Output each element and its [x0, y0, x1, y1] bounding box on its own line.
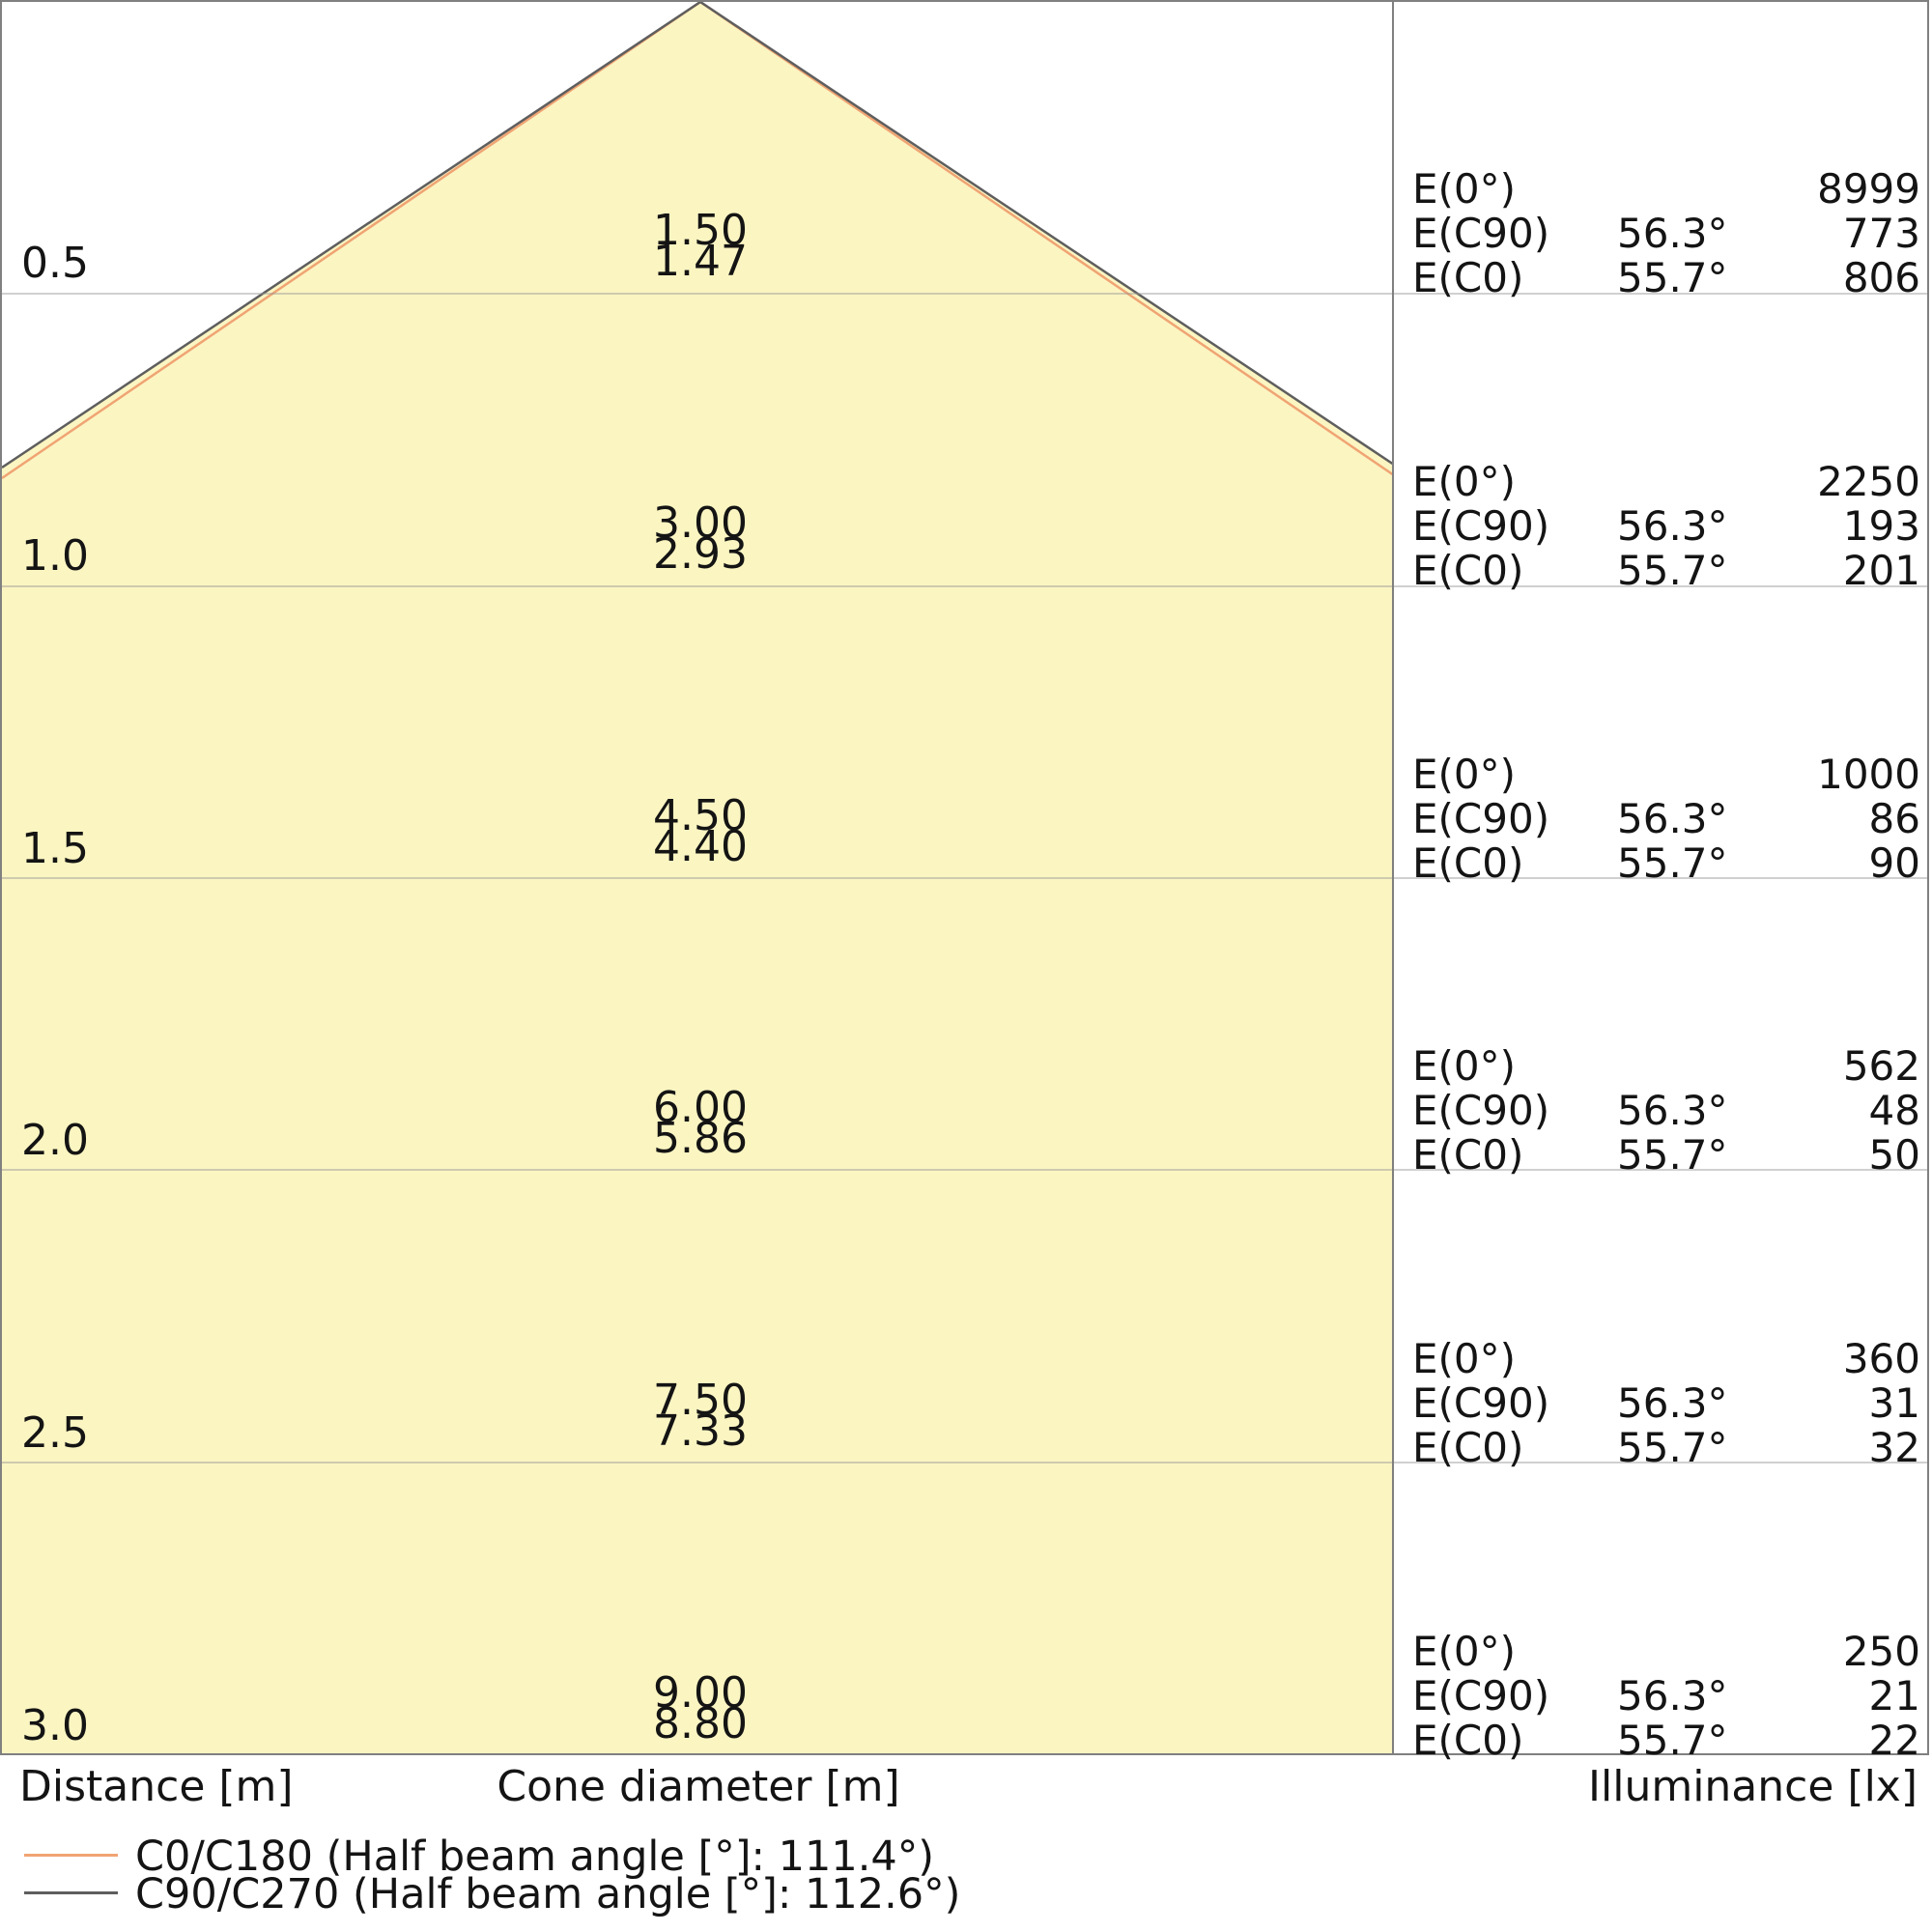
e-value: 193	[1721, 504, 1920, 549]
illuminance-line: E(C0) 55.7° 806	[1412, 256, 1920, 300]
e-value: 773	[1721, 212, 1920, 256]
e-value: 22	[1721, 1719, 1920, 1763]
illuminance-line: E(C90) 56.3° 773	[1412, 212, 1920, 256]
e-label: E(C0)	[1412, 1426, 1617, 1470]
cone-diameter-c0-label: 1.47	[555, 241, 845, 283]
e-angle: 55.7°	[1617, 1719, 1721, 1763]
illuminance-block: E(0°) 1000 E(C90) 56.3° 86 E(C0) 55.7° 9…	[1412, 753, 1920, 886]
e-label: E(0°)	[1412, 753, 1617, 797]
chart-area: 0.5 1.50 1.47 E(0°) 8999 E(C90) 56.3° 77…	[0, 0, 1929, 1755]
cone-diameter-c0-label: 8.80	[555, 1703, 845, 1746]
legend-label-c90: C90/C270 (Half beam angle [°]: 112.6°)	[135, 1873, 960, 1916]
e-label: E(C0)	[1412, 1719, 1617, 1763]
illuminance-line: E(C0) 55.7° 50	[1412, 1133, 1920, 1178]
e-label: E(0°)	[1412, 1337, 1617, 1381]
e-angle	[1617, 460, 1721, 504]
illuminance-line: E(C0) 55.7° 90	[1412, 841, 1920, 886]
e-angle	[1617, 1044, 1721, 1089]
e-label: E(0°)	[1412, 167, 1617, 212]
e-label: E(0°)	[1412, 460, 1617, 504]
illuminance-line: E(C0) 55.7° 22	[1412, 1719, 1920, 1763]
e-label: E(0°)	[1412, 1630, 1617, 1674]
e-angle	[1617, 1337, 1721, 1381]
e-angle	[1617, 1630, 1721, 1674]
e-label: E(0°)	[1412, 1044, 1617, 1089]
distance-tick-label: 3.0	[21, 1705, 89, 1747]
e-label: E(C0)	[1412, 841, 1617, 886]
legend-swatch-c0-line	[24, 1854, 118, 1857]
distance-axis-label: Distance [m]	[19, 1766, 294, 1808]
e-value: 1000	[1721, 753, 1920, 797]
illuminance-block: E(0°) 360 E(C90) 56.3° 31 E(C0) 55.7° 32	[1412, 1337, 1920, 1470]
e-angle: 55.7°	[1617, 256, 1721, 300]
e-label: E(C90)	[1412, 1674, 1617, 1719]
e-angle: 56.3°	[1617, 504, 1721, 549]
cone-diameter-axis-label: Cone diameter [m]	[497, 1766, 899, 1808]
illuminance-line: E(C90) 56.3° 21	[1412, 1674, 1920, 1719]
e-value: 2250	[1721, 460, 1920, 504]
e-value: 50	[1721, 1133, 1920, 1178]
cone-diameter-c0-label: 5.86	[555, 1118, 845, 1160]
distance-tick-label: 2.0	[21, 1120, 89, 1162]
illuminance-line: E(C90) 56.3° 31	[1412, 1381, 1920, 1426]
distance-tick-label: 2.5	[21, 1412, 89, 1455]
e-angle: 55.7°	[1617, 549, 1721, 593]
illuminance-line: E(0°) 2250	[1412, 460, 1920, 504]
e-angle: 55.7°	[1617, 1426, 1721, 1470]
distance-tick-label: 0.5	[21, 242, 89, 285]
illuminance-line: E(0°) 562	[1412, 1044, 1920, 1089]
cone-diagram-page: 0.5 1.50 1.47 E(0°) 8999 E(C90) 56.3° 77…	[0, 0, 1932, 1932]
e-label: E(C90)	[1412, 1381, 1617, 1426]
e-value: 360	[1721, 1337, 1920, 1381]
e-angle: 56.3°	[1617, 1089, 1721, 1133]
distance-tick-label: 1.5	[21, 828, 89, 870]
e-value: 21	[1721, 1674, 1920, 1719]
distance-tick-label: 1.0	[21, 535, 89, 578]
e-angle: 56.3°	[1617, 797, 1721, 841]
cone-diameter-c0-label: 7.33	[555, 1410, 845, 1453]
illuminance-line: E(0°) 8999	[1412, 167, 1920, 212]
illuminance-block: E(0°) 2250 E(C90) 56.3° 193 E(C0) 55.7° …	[1412, 460, 1920, 593]
e-value: 201	[1721, 549, 1920, 593]
cone-diameter-c0-label: 2.93	[555, 533, 845, 576]
e-value: 90	[1721, 841, 1920, 886]
e-value: 250	[1721, 1630, 1920, 1674]
e-label: E(C0)	[1412, 549, 1617, 593]
illuminance-line: E(0°) 360	[1412, 1337, 1920, 1381]
e-angle: 55.7°	[1617, 1133, 1721, 1178]
illuminance-block: E(0°) 250 E(C90) 56.3° 21 E(C0) 55.7° 22	[1412, 1630, 1920, 1763]
e-angle: 56.3°	[1617, 1674, 1721, 1719]
e-value: 562	[1721, 1044, 1920, 1089]
e-angle: 56.3°	[1617, 212, 1721, 256]
legend-swatch-c90-line	[24, 1891, 118, 1894]
cone-diameter-c0-label: 4.40	[555, 826, 845, 868]
e-label: E(C0)	[1412, 256, 1617, 300]
illuminance-line: E(0°) 250	[1412, 1630, 1920, 1674]
illuminance-line: E(C90) 56.3° 193	[1412, 504, 1920, 549]
e-value: 48	[1721, 1089, 1920, 1133]
illuminance-line: E(C90) 56.3° 86	[1412, 797, 1920, 841]
panel-divider	[1392, 2, 1394, 1753]
illuminance-axis-label: Illuminance [lx]	[1588, 1766, 1918, 1808]
e-value: 32	[1721, 1426, 1920, 1470]
e-angle: 55.7°	[1617, 841, 1721, 886]
e-angle	[1617, 167, 1721, 212]
e-angle	[1617, 753, 1721, 797]
e-label: E(C90)	[1412, 1089, 1617, 1133]
illuminance-line: E(C90) 56.3° 48	[1412, 1089, 1920, 1133]
e-label: E(C90)	[1412, 504, 1617, 549]
illuminance-line: E(C0) 55.7° 32	[1412, 1426, 1920, 1470]
e-label: E(C90)	[1412, 797, 1617, 841]
illuminance-block: E(0°) 8999 E(C90) 56.3° 773 E(C0) 55.7° …	[1412, 167, 1920, 300]
e-value: 31	[1721, 1381, 1920, 1426]
e-label: E(C0)	[1412, 1133, 1617, 1178]
e-value: 86	[1721, 797, 1920, 841]
e-value: 806	[1721, 256, 1920, 300]
e-angle: 56.3°	[1617, 1381, 1721, 1426]
e-label: E(C90)	[1412, 212, 1617, 256]
illuminance-block: E(0°) 562 E(C90) 56.3° 48 E(C0) 55.7° 50	[1412, 1044, 1920, 1178]
illuminance-line: E(0°) 1000	[1412, 753, 1920, 797]
e-value: 8999	[1721, 167, 1920, 212]
illuminance-line: E(C0) 55.7° 201	[1412, 549, 1920, 593]
